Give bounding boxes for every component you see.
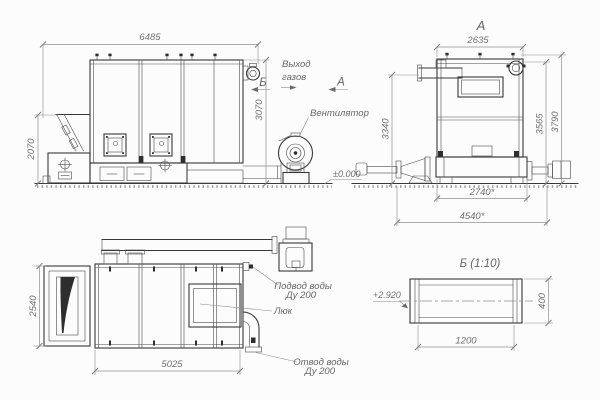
gas-outlet-callout: Выход газов <box>281 59 311 90</box>
plan-hopper-frame <box>44 266 90 346</box>
dim-2740: 2740* <box>434 179 530 202</box>
dim-3790-text: 3790 <box>550 111 561 133</box>
plan-hopper-shade <box>60 277 75 333</box>
dim-2740-text: 2740* <box>469 187 495 198</box>
side-burner-door-2 <box>150 134 172 156</box>
gas-flow-arrow <box>290 85 297 90</box>
side-view: Вентилятор ±0.000 Выход газов Б А <box>26 32 369 187</box>
view-b-section <box>399 279 533 323</box>
dim-2070-text: 2070 <box>26 138 37 161</box>
dim-2540: 2540 <box>28 263 46 349</box>
view-a-outlet-pipe <box>418 60 463 81</box>
view-a-arrow <box>329 87 336 92</box>
view-b-title: Б (1:10) <box>460 258 501 270</box>
dim-5025-text: 5025 <box>161 359 183 370</box>
gas-label-line2: газов <box>282 72 306 83</box>
view-a-right-conveyor <box>527 161 571 180</box>
dim-4540-text: 4540* <box>460 211 485 222</box>
side-boiler-body <box>90 60 243 163</box>
hatch-callout: Люк <box>200 304 293 317</box>
dim-6485-text: 6485 <box>139 32 161 43</box>
fan-side <box>279 133 313 184</box>
section-marker-b: Б <box>251 77 270 92</box>
drawing-canvas: Вентилятор ±0.000 Выход газов Б А <box>0 0 600 400</box>
side-top-bolts <box>95 54 216 60</box>
view-a-body <box>437 59 523 157</box>
dim-2635-text: 2635 <box>466 35 489 46</box>
dim-400-text: 400 <box>537 292 548 309</box>
fan-label: Вентилятор <box>310 108 369 119</box>
drawing-sheet: Вентилятор ±0.000 Выход газов Б А <box>0 0 600 400</box>
dim-3070-text: 3070 <box>254 99 265 121</box>
dim-1200-text: 1200 <box>455 336 477 347</box>
side-burner-door-1 <box>104 134 126 156</box>
dim-3340-text: 3340 <box>381 118 392 140</box>
supply-callout: Подвод воды Ду 200 <box>253 267 332 301</box>
elevation-2920-text: +2.920 <box>373 290 401 300</box>
side-gas-outlet-flange <box>243 64 260 81</box>
view-b: Б (1:10) +2.920 400 <box>373 258 553 351</box>
view-a-title: А <box>476 18 486 33</box>
view-a-opening <box>458 77 503 97</box>
dim-6485: 6485 <box>40 32 261 118</box>
elevation-2920-mark: +2.920 <box>373 290 408 308</box>
dim-2070: 2070 <box>26 112 58 187</box>
dim-3340: 3340 <box>381 72 420 187</box>
drain-label-line2: Ду 200 <box>304 366 336 377</box>
plan-supply-fitting <box>243 263 253 271</box>
view-a-base-trough <box>436 157 527 184</box>
plan-drain-elbow <box>243 312 262 352</box>
gas-label-line1: Выход <box>282 59 311 70</box>
fan-callout: Вентилятор <box>299 108 369 137</box>
dim-3565-text: 3565 <box>535 113 546 135</box>
side-fuel-hopper <box>43 115 90 184</box>
elevation-zero-mark: ±0.000 <box>325 169 363 184</box>
dim-2540-text: 2540 <box>28 295 39 318</box>
view-a: А <box>352 18 578 226</box>
view-a-top-bolts <box>445 53 514 59</box>
hatch-label: Люк <box>273 306 293 317</box>
plan-long-pipe <box>102 237 277 254</box>
side-fan-duct <box>243 163 281 183</box>
dim-5025: 5025 <box>92 350 243 375</box>
plan-view: Подвод воды Ду 200 Люк Отвод воды Ду 200… <box>28 227 349 377</box>
supply-label-line2: Ду 200 <box>285 290 317 301</box>
view-a-letter: А <box>336 77 345 89</box>
drain-callout: Отвод воды Ду 200 <box>256 353 349 378</box>
view-marker-a: А <box>329 77 349 93</box>
view-a-left-conveyor <box>356 157 432 183</box>
section-b-arrow <box>251 87 258 92</box>
plan-pipe-stubs <box>102 250 145 264</box>
dim-1200: 1200 <box>415 325 517 351</box>
plan-fan <box>279 227 312 271</box>
